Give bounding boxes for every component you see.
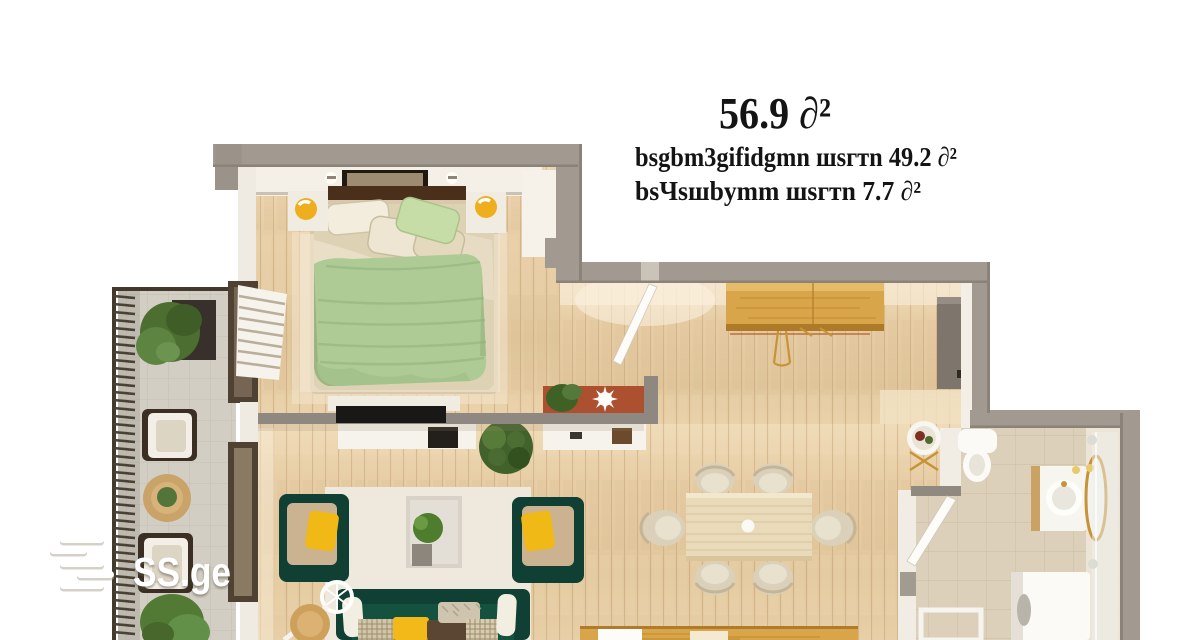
svg-text:56.9 ∂²: 56.9 ∂² [719,89,831,138]
svg-text:SS.ge: SS.ge [133,549,231,595]
svg-text:bsЧsшbуmm шsгтn 7.7 ∂²: bsЧsшbуmm шsгтn 7.7 ∂² [635,176,921,206]
svg-text:bsgbm3gifidgmn шsгтn 49.2 ∂²: bsgbm3gifidgmn шsгтn 49.2 ∂² [635,142,957,172]
